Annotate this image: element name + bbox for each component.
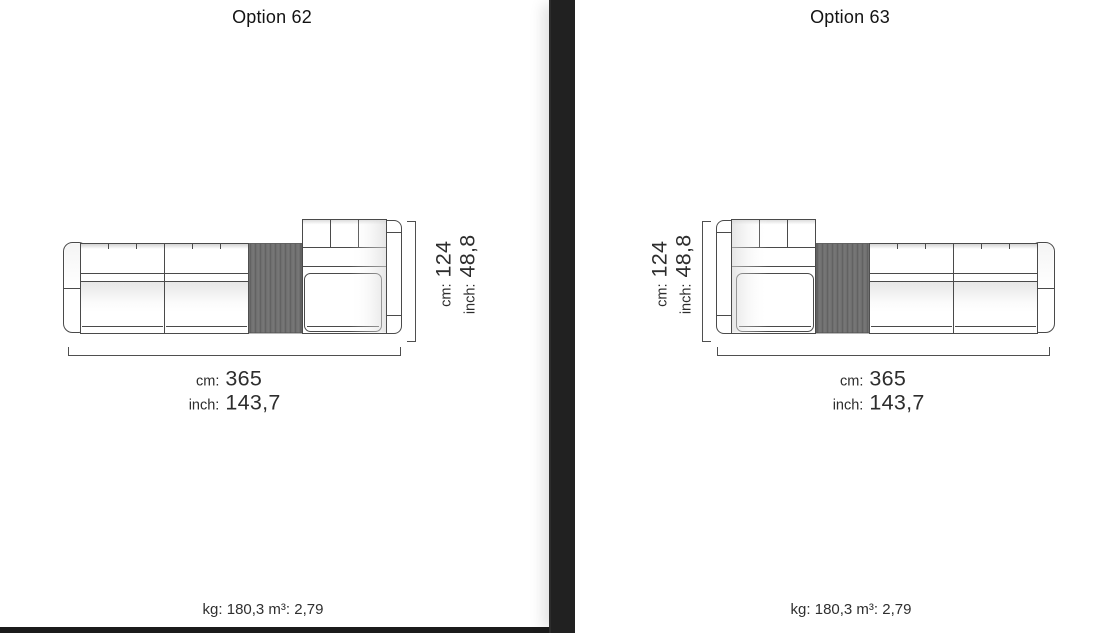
option-title: Option 63 <box>810 7 890 28</box>
inch-label: inch: <box>819 398 863 413</box>
cm-value: 124 <box>650 241 672 278</box>
inch-label: inch: <box>463 284 478 328</box>
cm-value: 365 <box>225 369 262 391</box>
cm-label: cm: <box>440 284 455 328</box>
sofa-top-view-drawing <box>55 210 425 360</box>
weight-volume-label: kg: 180,3 m³: 2,79 <box>791 601 912 618</box>
weight-volume-label: kg: 180,3 m³: 2,79 <box>203 601 324 618</box>
depth-dimension-label: cm: 124 inch: 48,8 <box>434 234 479 327</box>
width-dimension-label: cm: 365 inch: 143,7 <box>819 369 924 414</box>
inch-label: inch: <box>175 398 219 413</box>
inch-label: inch: <box>679 284 694 328</box>
panel-divider <box>549 0 575 633</box>
cm-label: cm: <box>819 375 863 390</box>
panel-option-62: Option 62 cm: 124 inch: 48,8 cm: 365 inc… <box>0 0 549 633</box>
sofa-top-view-drawing-mirrored <box>693 210 1063 360</box>
inch-value: 143,7 <box>225 392 280 414</box>
inch-value: 143,7 <box>869 392 924 414</box>
cm-value: 124 <box>434 241 456 278</box>
inch-value: 48,8 <box>673 234 695 277</box>
inch-value: 48,8 <box>457 234 479 277</box>
cm-label: cm: <box>656 284 671 328</box>
bottom-bar <box>0 627 549 633</box>
cm-value: 365 <box>869 369 906 391</box>
depth-dimension-label: cm: 124 inch: 48,8 <box>650 234 695 327</box>
width-dimension-label: cm: 365 inch: 143,7 <box>175 369 280 414</box>
cm-label: cm: <box>175 375 219 390</box>
option-title: Option 62 <box>232 7 312 28</box>
panel-option-63: Option 63 cm: 124 inch: 48,8 cm: 365 inc… <box>575 0 1116 633</box>
